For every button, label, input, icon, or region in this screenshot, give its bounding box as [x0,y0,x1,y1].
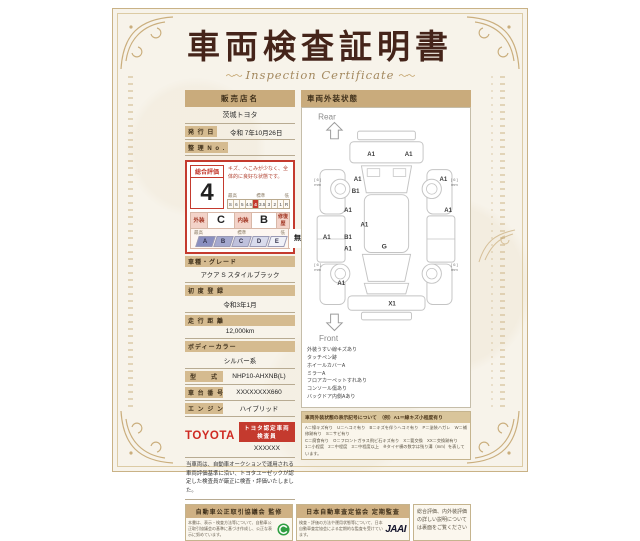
vehicle-field-label: 走 行 距 離 [185,315,295,326]
vehicle-field-row: 車 台 番 号XXXXXXXX660 [185,385,295,401]
windshield [362,255,410,282]
vehicle-field-label: 車 台 番 号 [185,387,223,398]
vehicle-field-row: 車種・グレードアクア S スタイルブラック [185,254,295,284]
repair-history-label: 修復歴 [277,213,289,227]
damage-marker-a1: A1 [344,208,352,214]
vehicle-fields: 車種・グレードアクア S スタイルブラック初 度 登 録令和3年1月走 行 距 … [185,254,295,417]
flourish-icon [475,222,519,266]
jaai-logo: JAAI [385,524,407,535]
tire-depth-label: mm [314,267,321,272]
front-lower-grille [361,313,411,321]
score-scale-cell: R [284,200,289,208]
inspector-block: TOYOTA トヨタ認定車両検査員 XXXXXX [185,422,295,452]
vehicle-info-column: 販売店名 茨城トヨタ 発 行 日 令和 7年10月26日 整 理 N o . 総… [185,90,295,500]
issue-date-row: 発 行 日 令和 7年10月26日 [185,124,295,140]
condition-note-line: タッチペン跡 [307,355,465,363]
right-front-wheel-hub [426,269,437,280]
damage-marker-a1: A1 [344,247,352,253]
overall-score-box: 総合評価 4 [190,165,224,209]
vehicle-field-row: ボディーカラーシルバー系 [185,339,295,369]
vehicle-field-value: シルバー系 [185,352,295,366]
subtitle-flourish-left: ～～ [226,72,242,82]
exterior-condition-column: 車両外装状態 Rear [301,90,471,500]
grade-row: 外装 C 内装 B 修復歴 [190,212,290,228]
condition-note-line: ホイールカバーA [307,363,465,371]
vehicle-field-label: 型 式 [185,371,223,382]
issue-date-value: 令和 7年10月26日 [217,127,295,137]
overall-evaluation-box: 総合評価 4 キズ、へこみが少なく、全体的に良好な状態です。 最高 標準 低 S… [185,160,295,253]
damage-marker-g: G [382,244,387,251]
letter-grade-scale: ABCDE [193,236,286,247]
jaai-audit-box: 日本自動車査定協会 定期監査 検査・評価の方法や運用状態等について、日本自動車査… [296,504,410,541]
footer: 自動車公正取引協議会 監修 本書は、表示・検査方法等について、自動車公正取引協議… [185,504,471,541]
border-lace-left [128,73,133,407]
left-headrest [367,169,380,177]
certificate-subtitle: ～～Inspection Certificate～～ [113,68,527,82]
toyota-logo: TOYOTA [185,422,235,442]
jaai-audit-text: 検査・評価の方法や運用状態等について、日本自動車査定協会による定期的な監査を受け… [299,520,383,538]
damage-marker-a1: A1 [444,208,452,214]
subtitle-flourish-right: ～～ [398,72,414,82]
symbol-legend-lines: A＝線キズ有り U＝ヘコミ有り B＝キズを伴うヘコミ有り P＝塗装ハガレ W＝補… [302,423,470,460]
overall-evaluation-label: 総合評価 [191,166,223,178]
rear-trunk-edge [358,131,416,140]
jaai-audit-header: 日本自動車査定協会 定期監査 [297,505,409,518]
damage-marker-a1: A1 [367,152,375,158]
vehicle-field-label: 車種・グレード [185,256,295,267]
interior-grade-label: 内装 [235,213,251,227]
damage-marker-a1: A1 [354,178,362,184]
fair-trade-council-header: 自動車公正取引協議会 監修 [186,505,292,518]
interior-grade-value: B [251,213,277,227]
inspection-statement: 当車両は、自動車オークションで運用される車両評価基準に沿い、トヨタユーゼックが認… [185,457,295,501]
vehicle-field-row: 型 式NHP10-AHXNB(L) [185,369,295,385]
front-bumper [348,296,425,310]
damage-marker-x1: X1 [388,302,396,308]
car-diagram-box: Rear [301,107,471,407]
condition-note-line: コンソール傷あり [307,386,465,394]
symbol-legend-header: 車両外装状態の表示記号について （例）A1＝線キズ小程度有り [302,412,470,423]
vehicle-field-label: 初 度 登 録 [185,285,295,296]
symbol-legend-line: 1＝小程度 2＝中程度 3＝中程度以上 ※タイヤ横の数字は残り溝（mm）を表して… [305,444,467,457]
dealer-name: 茨城トヨタ [185,107,295,124]
symbol-legend-box: 車両外装状態の表示記号について （例）A1＝線キズ小程度有り A＝線キズ有り U… [301,411,471,461]
left-front-wheel-hub [335,269,346,280]
vehicle-field-row: 初 度 登 録令和3年1月 [185,283,295,313]
right-headrest [393,169,406,177]
inspector-number: XXXXXX [239,442,295,452]
vehicle-field-value: ハイブリッド [223,403,295,413]
damage-marker-a1: A1 [405,152,413,158]
right-rear-wheel-hub [426,184,437,195]
dealer-header-bar: 販売店名 [185,90,295,107]
exterior-condition-header-bar: 車両外装状態 [301,90,471,107]
tire-depth-label: mm [314,182,321,187]
vehicle-field-row: エ ン ジ ンハイブリッド [185,401,295,417]
damage-marker-a1: A1 [439,178,447,184]
exterior-grade-label: 外装 [191,213,207,227]
symbol-legend-line: A＝線キズ有り U＝ヘコミ有り B＝キズを伴うヘコミ有り P＝塗装ハガレ W＝補… [305,425,467,438]
evaluation-comment: キズ、へこみが少なく、全体的に良好な状態です。 [227,165,290,193]
letter-grade-cell: E [267,236,288,247]
rear-arrow-icon [327,123,342,139]
reference-number-label: 整 理 N o . [185,142,228,153]
vehicle-field-value: 令和3年1月 [185,296,295,310]
damage-marker-a1: A1 [323,235,331,241]
certificate-title: 車両検査証明書 [113,29,527,65]
condition-note-line: フロアカーペットすれあり [307,378,465,386]
vehicle-field-label: エ ン ジ ン [185,403,223,414]
tire-depth-label: mm [451,182,458,187]
border-ornament-icon [119,409,175,465]
condition-note-line: 外装うすい線キズあり [307,347,465,355]
certified-inspector-badge: トヨタ認定車両検査員 [239,422,295,442]
fair-trade-council-text: 本書は、表示・検査方法等について、自動車公正取引協議会の基準に基づき作成し、公正… [188,520,275,538]
front-direction-label: Front [319,334,339,343]
car-diagram: Rear [302,108,470,344]
vehicle-field-value: 12,000km [185,326,295,337]
score-scale-cell: 4.5 [246,200,253,208]
vehicle-field-row: 走 行 距 離12,000km [185,313,295,340]
damage-marker-b1: B1 [344,235,352,241]
damage-marker-b1: B1 [352,189,360,195]
letter-grade-row: 最高 標準 低 ABCDE 無 [190,229,290,249]
page: 車両検査証明書 ～～Inspection Certificate～～ 販売店名 … [0,0,640,480]
front-arrow-icon [327,314,342,330]
overall-score: 4 [191,178,223,208]
vehicle-field-value: XXXXXXXX660 [223,389,295,396]
damage-marker-a1: A1 [360,223,368,229]
back-side-note: 総合評価、内外装評価の詳しい説明については裏面をご覧ください [413,504,471,541]
issue-date-label: 発 行 日 [185,126,217,137]
hood [364,284,408,295]
border-ornament-icon [465,409,521,465]
left-rear-wheel-hub [335,184,346,195]
fair-trade-council-box: 自動車公正取引協議会 監修 本書は、表示・検査方法等について、自動車公正取引協議… [185,504,293,541]
reference-number-row: 整 理 N o . [185,140,295,156]
score-scale: S654.543.5321R [227,199,290,209]
vehicle-field-label: ボディーカラー [185,341,295,352]
score-scale-cell: 3.5 [259,200,266,208]
damage-marker-a1: A1 [337,282,345,288]
exterior-grade-value: C [207,213,235,227]
vehicle-field-value: NHP10-AHXNB(L) [223,373,295,380]
condition-note-line: バックドア内側Aあり [307,394,465,402]
condition-note-line: ミラーA [307,371,465,379]
rear-direction-label: Rear [318,113,336,122]
fair-trade-council-logo-icon [277,523,290,536]
certificate: 車両検査証明書 ～～Inspection Certificate～～ 販売店名 … [112,8,528,472]
condition-notes: 外装うすい線キズありタッチペン跡ホイールカバーAミラーAフロアカーペットすれあり… [302,344,470,406]
tire-depth-label: mm [451,267,458,272]
vehicle-field-value: アクア S スタイルブラック [185,267,295,281]
